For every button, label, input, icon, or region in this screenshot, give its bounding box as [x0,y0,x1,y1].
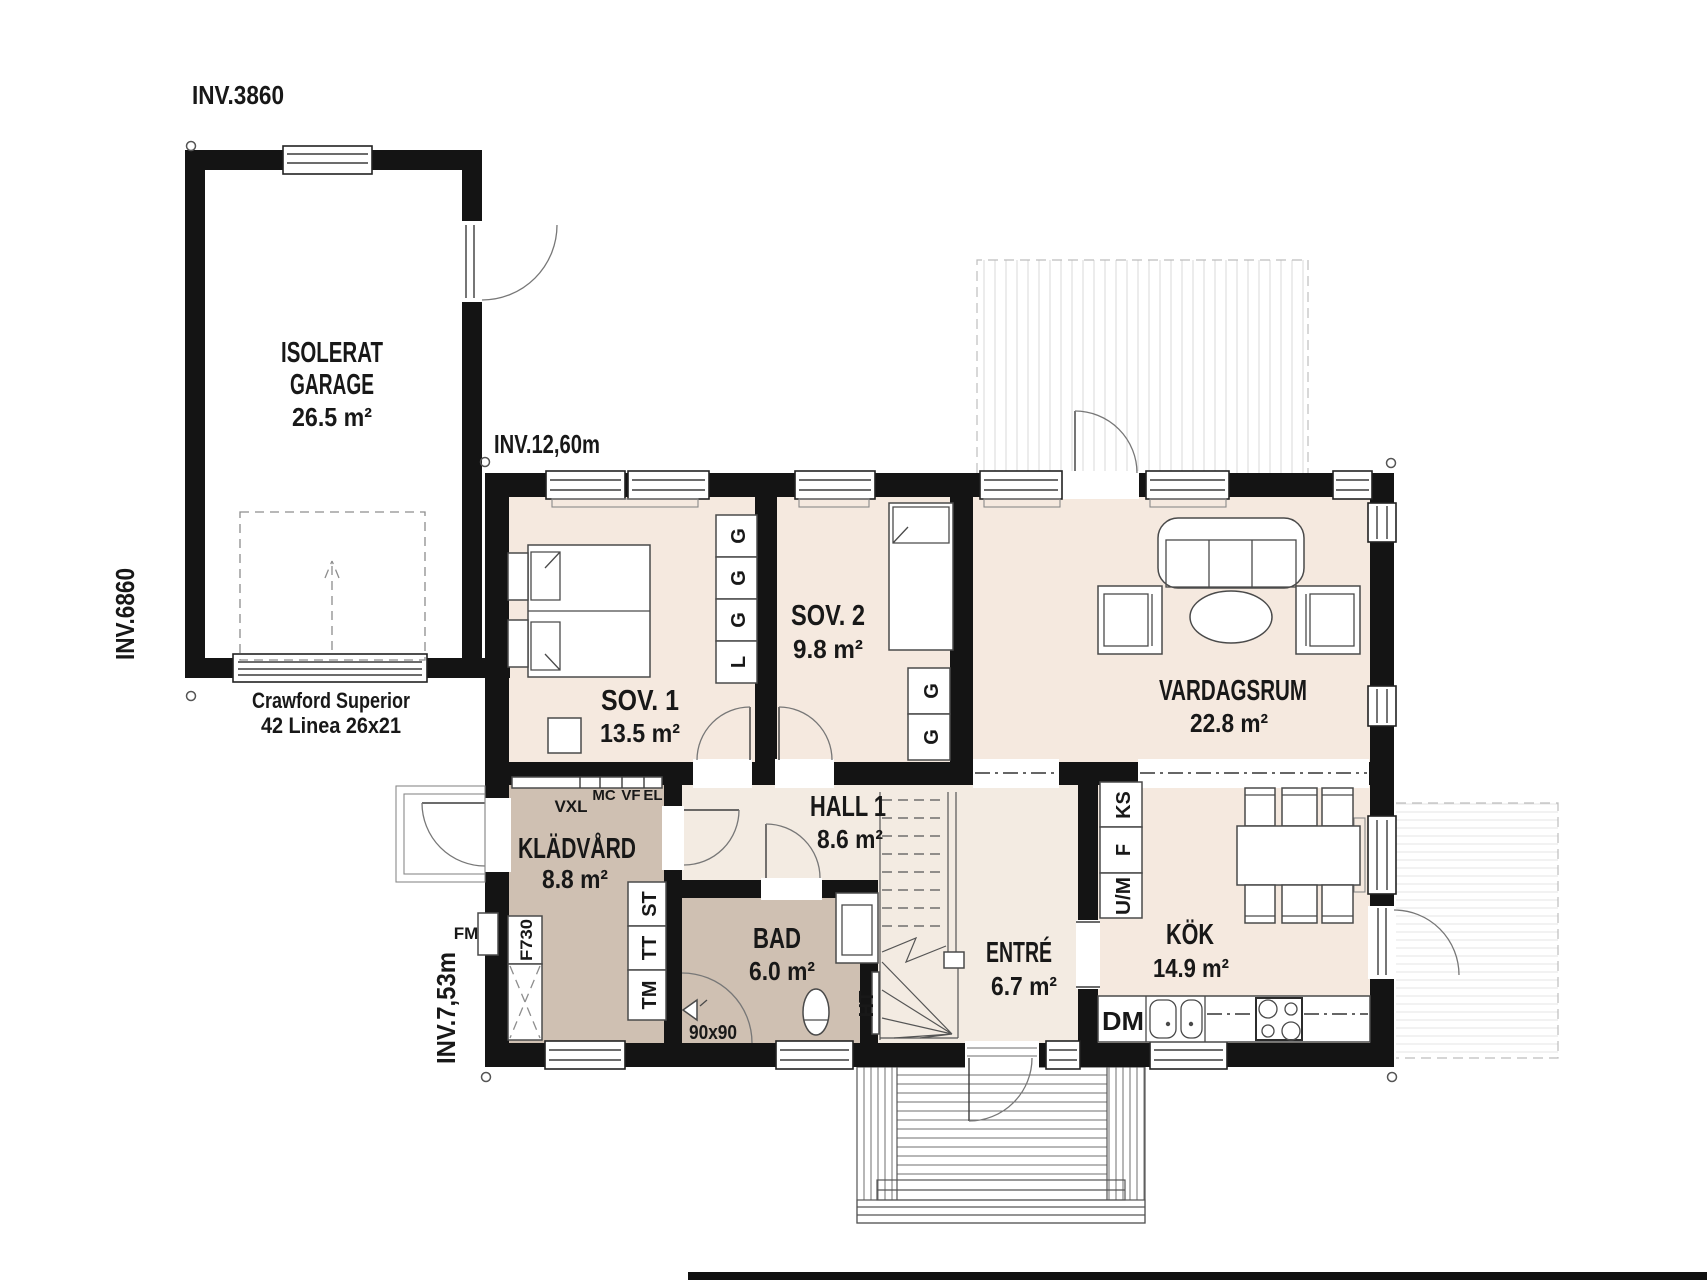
top-deck [977,260,1308,473]
sov1-name: SOV. 1 [601,685,679,717]
st-label: ST [639,891,661,917]
garage-name-1: ISOLERAT [281,337,383,369]
wardrobes-sov2: G G [908,668,950,760]
garage-area: 26.5 m² [292,402,372,432]
vxl-label: VXL [554,797,587,816]
entry-porch [857,1067,1145,1223]
dim-garage-depth: INV.6860 [110,568,140,660]
vardagsrum-area: 22.8 m² [1190,708,1268,738]
dim-garage-width: INV.3860 [192,80,284,110]
vardagsrum-name: VARDAGSRUM [1159,675,1307,707]
um-label: U/M [1113,877,1135,915]
door-kladvard-exterior [396,786,511,882]
tt-label: TT [639,936,661,960]
tm-label: TM [639,981,661,1010]
floorplan-page: G G G L G G KS F U/M ST TT TM F730 [0,0,1707,1280]
el-label: EL [643,787,662,804]
f730-label: F730 [517,919,536,961]
entre-area: 6.7 m² [991,971,1057,1001]
fm-label: FM [454,924,479,943]
kok-dining-set [1237,788,1360,923]
linen-closet-label: L [728,656,750,668]
kladvard-name: KLÄDVÅRD [518,832,636,865]
kok-name: KÖK [1166,918,1214,951]
wardrobe-label: G [921,729,943,745]
ks-label: KS [1113,791,1135,819]
sov1-area: 13.5 m² [600,718,680,748]
garage-window [283,146,372,174]
bottom-screen-edge [688,1272,1707,1280]
kok-tall-cabinets: KS F U/M [1100,782,1142,918]
garage-door-brand-2: 42 Linea 26x21 [261,713,401,738]
fridge-label: F [1113,844,1135,856]
mc-label: MC [592,787,615,804]
wardrobe-label: G [728,612,750,628]
sov2-area: 9.8 m² [793,634,863,664]
bad-name: BAD [753,923,801,955]
dm-label: DM [1102,1006,1144,1036]
vardagsrum-armchair-right [1296,586,1360,654]
bad-area: 6.0 m² [749,956,815,986]
kladvard-area: 8.8 m² [542,864,608,894]
fm-meter-box [478,913,498,955]
ht-label: HT [856,991,878,1018]
right-deck [1396,803,1558,1058]
floorplan-drawing: G G G L G G KS F U/M ST TT TM F730 [0,0,1707,1280]
kladvard-left-cabinets: F730 [508,916,542,1040]
wardrobe-label: G [921,683,943,699]
dim-house-depth: INV.7,53m [431,952,461,1064]
kladvard-appliances: ST TT TM [628,882,666,1020]
vf-label: VF [621,787,640,804]
dim-house-width: INV.12,60m [494,429,600,459]
wardrobes-sov1: G G G L [716,515,757,683]
vardagsrum-coffee-table [1190,591,1272,643]
hall-area: 8.6 m² [817,824,883,854]
garage-door-brand-1: Crawford Superior [252,688,410,713]
garage-parking-space [240,512,425,660]
vardagsrum-armchair-left [1098,586,1162,654]
kok-area: 14.9 m² [1153,953,1229,983]
sov2-name: SOV. 2 [791,600,865,632]
wardrobe-label: G [728,528,750,544]
entre-name: ENTRÉ [986,935,1052,969]
sov2-bed [889,503,953,650]
vardagsrum-sofa [1158,518,1304,588]
shower-size-label: 90x90 [689,1022,737,1044]
hall-name: HALL 1 [810,791,886,823]
wardrobe-label: G [728,570,750,586]
garage-side-door [458,221,557,302]
garage-vehicle-door [233,654,427,682]
garage-name-2: GARAGE [290,369,374,401]
